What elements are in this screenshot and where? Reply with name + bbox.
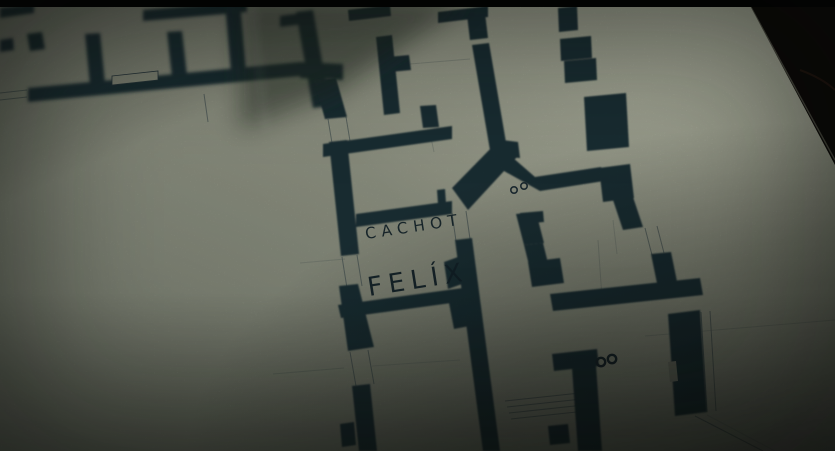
film-still-floor-plan: CACHOT FELÍX <box>0 0 835 451</box>
film-grain <box>0 0 835 451</box>
letterbox-bar <box>0 0 835 7</box>
floor-plan-drawing: CACHOT FELÍX <box>0 0 835 451</box>
